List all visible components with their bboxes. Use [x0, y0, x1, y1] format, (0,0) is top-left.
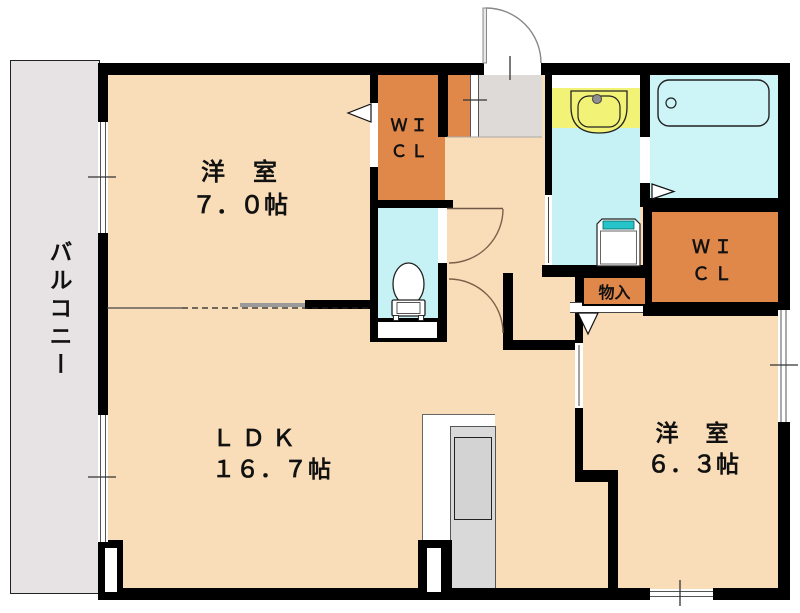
room-name: 洋 室 [633, 418, 753, 449]
entrance-door-arc [486, 8, 541, 63]
wall [608, 470, 618, 592]
balcony-label: バルコニー [42, 240, 76, 425]
wall [643, 198, 778, 212]
room-size: ６．３帖 [633, 449, 753, 480]
entrance-doorway [484, 63, 541, 75]
room-name: ＬＤＫ [212, 423, 332, 454]
entrance-door-panel [483, 8, 487, 63]
room-size: １６．７帖 [212, 454, 332, 485]
shoe-cabinet-gap [470, 75, 479, 137]
kitchen-sink-unit [454, 437, 492, 520]
window [778, 310, 790, 422]
window [98, 415, 108, 542]
window [98, 122, 108, 233]
wall [503, 273, 513, 345]
room-label-wic-top: ＷＩ ＣＬ [376, 113, 445, 165]
wall [575, 408, 583, 477]
room-label-bedroom-top: 洋 室 ７．０帖 [140, 156, 340, 222]
wic-line2: ＣＬ [376, 139, 445, 165]
partition-rail [240, 303, 305, 307]
wall [98, 588, 650, 600]
floorplan-canvas: 洋 室 ７．０帖 ＷＩ ＣＬ ＬＤＫ １６．７帖 洋 室 ６．３帖 ＷＩ ＣＬ … [0, 0, 800, 613]
sliding-doorway [575, 343, 583, 408]
wic-line1: ＷＩ [376, 113, 445, 139]
wall [778, 422, 790, 600]
wic-line1: ＷＩ [650, 234, 778, 261]
wic-line2: ＣＬ [650, 261, 778, 288]
room-name: 洋 室 [140, 156, 340, 189]
room-label-bedroom-right: 洋 室 ６．３帖 [633, 418, 753, 480]
wall [778, 63, 790, 310]
wall [98, 63, 108, 122]
wall [370, 63, 378, 103]
entry-floor [477, 75, 542, 137]
wall [98, 233, 108, 415]
wall [370, 200, 453, 208]
washroom-doorway [545, 195, 552, 265]
wall-vent [378, 322, 437, 338]
room-size: ７．０帖 [140, 189, 340, 222]
toilet-doorway [438, 208, 447, 263]
partition-bar [305, 300, 372, 309]
room-label-ldk: ＬＤＫ １６．７帖 [212, 423, 332, 485]
wall [643, 302, 790, 316]
wall [640, 63, 650, 137]
pillar-slot-window [427, 548, 441, 592]
bath-area [650, 75, 778, 205]
room-label-wic-right: ＷＩ ＣＬ [650, 234, 778, 288]
window [650, 589, 713, 600]
storage-label-box: 物入 [582, 276, 647, 306]
storage-label: 物入 [598, 279, 630, 303]
wall [503, 340, 583, 350]
toilet-room [378, 208, 440, 318]
wall [541, 63, 790, 75]
washroom-top-strip [552, 75, 640, 88]
bath-doorway [640, 137, 650, 183]
wall [713, 588, 790, 600]
pillar-slot-window [105, 548, 117, 592]
wall [545, 63, 552, 195]
wall [98, 63, 484, 75]
vanity-counter [552, 88, 640, 128]
shoe-cabinet [448, 75, 470, 137]
